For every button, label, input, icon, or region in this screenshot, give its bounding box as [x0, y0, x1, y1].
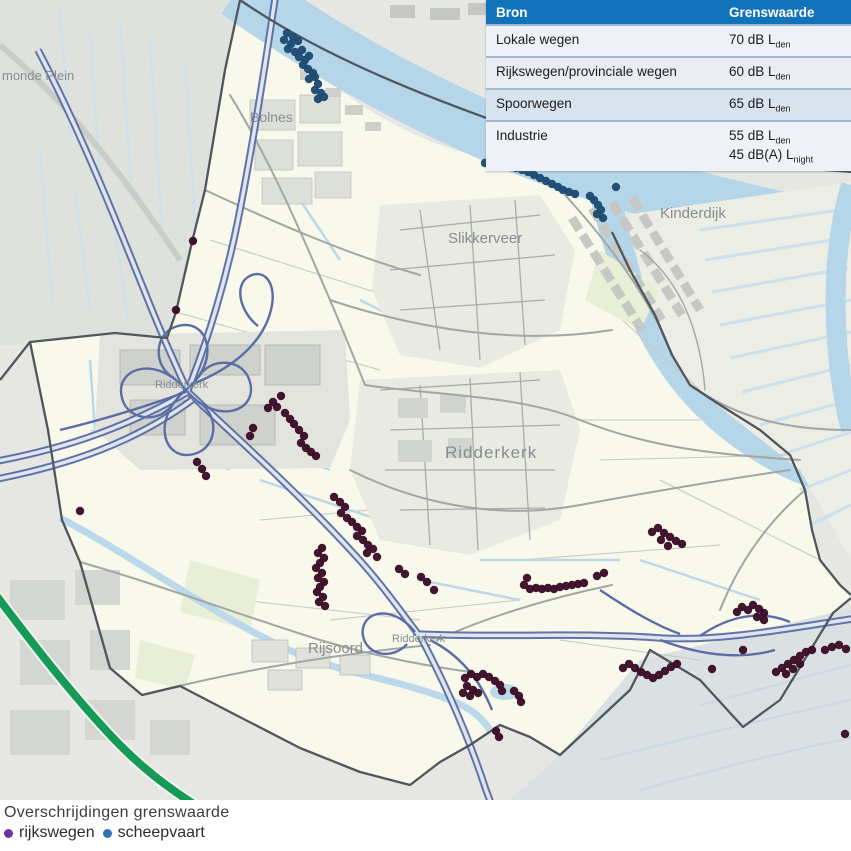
grenswaarde-cell: 60 dB Lden — [719, 58, 851, 88]
exceedance-dot — [305, 52, 313, 60]
limits-table-header: Bron Grenswaarde — [486, 0, 851, 24]
header-bron: Bron — [486, 0, 719, 24]
bron-cell: Industrie — [486, 122, 719, 171]
exceedance-dot — [474, 689, 482, 697]
scheepvaart-dot-icon — [103, 829, 112, 838]
exceedance-dot — [664, 542, 672, 550]
exceedance-dot — [76, 507, 84, 515]
map-legend: Overschrijdingen grenswaarde rijkswegens… — [4, 801, 844, 842]
exceedance-dot — [808, 646, 816, 654]
limits-table: Bron Grenswaarde Lokale wegen70 dB LdenR… — [486, 0, 851, 171]
rijkswegen-dot-icon — [4, 829, 13, 838]
legend-item-scheepvaart: scheepvaart — [103, 824, 205, 842]
place-label: Kinderdijk — [660, 205, 726, 222]
noise-map-figure: monde PleinBolnesSlikkerveerKinderdijkRi… — [0, 0, 851, 851]
exceedance-dot — [277, 392, 285, 400]
exceedance-dot — [673, 660, 681, 668]
exceedance-dot — [498, 687, 506, 695]
exceedance-dot — [796, 660, 804, 668]
place-label: monde Plein — [2, 68, 74, 83]
exceedance-dot — [320, 93, 328, 101]
legend-item-rijkswegen: rijkswegen — [4, 824, 95, 842]
legend-label: scheepvaart — [118, 824, 205, 842]
exceedance-dot — [678, 540, 686, 548]
bron-cell: Rijkswegen/provinciale wegen — [486, 58, 719, 88]
exceedance-dot — [842, 645, 850, 653]
exceedance-dot — [294, 37, 302, 45]
limits-table-body: Lokale wegen70 dB LdenRijkswegen/provinc… — [486, 24, 851, 171]
header-grenswaarde: Grenswaarde — [719, 0, 851, 24]
exceedance-dot — [189, 237, 197, 245]
exceedance-dot — [841, 730, 849, 738]
exceedance-dot — [321, 602, 329, 610]
legend-label: rijkswegen — [19, 824, 95, 842]
exceedance-dot — [495, 733, 503, 741]
legend-title: Overschrijdingen grenswaarde — [4, 801, 844, 822]
exceedance-dot — [401, 570, 409, 578]
grenswaarde-cell: 65 dB Lden — [719, 90, 851, 120]
table-row: Rijkswegen/provinciale wegen60 dB Lden — [486, 56, 851, 88]
table-row: Lokale wegen70 dB Lden — [486, 24, 851, 56]
exceedance-dot — [580, 579, 588, 587]
exceedance-dot — [312, 452, 320, 460]
table-row: Spoorwegen65 dB Lden — [486, 88, 851, 120]
exceedance-dot — [273, 403, 281, 411]
exceedance-dot — [430, 586, 438, 594]
exceedance-dot — [708, 665, 716, 673]
exceedance-dot — [193, 458, 201, 466]
exceedance-dot — [739, 646, 747, 654]
exceedance-dot — [523, 574, 531, 582]
grenswaarde-cell: 70 dB Lden — [719, 26, 851, 56]
bron-cell: Spoorwegen — [486, 90, 719, 120]
grenswaarde-cell: 55 dB Lden45 dB(A) Lnight — [719, 122, 851, 171]
exceedance-dot — [363, 549, 371, 557]
exceedance-dot — [600, 569, 608, 577]
legend-items: rijkswegenscheepvaart — [4, 824, 844, 842]
place-label: Bolnes — [250, 109, 293, 125]
exceedance-dot — [782, 670, 790, 678]
exceedance-dot — [246, 432, 254, 440]
exceedance-dot — [423, 578, 431, 586]
exceedance-dot — [789, 665, 797, 673]
exceedance-dot — [264, 404, 272, 412]
exceedance-dot — [202, 472, 210, 480]
exceedance-dot — [373, 553, 381, 561]
exceedance-dot — [172, 306, 180, 314]
exceedance-dot — [571, 190, 579, 198]
exceedance-dot — [599, 214, 607, 222]
exceedance-dot — [517, 698, 525, 706]
place-label: Rijsoord — [308, 640, 363, 657]
place-label: Ridderkerk — [392, 633, 446, 645]
exceedance-dot — [760, 616, 768, 624]
exceedance-dot — [249, 424, 257, 432]
bron-cell: Lokale wegen — [486, 26, 719, 56]
place-label: Ridderkerk — [155, 379, 209, 391]
place-label: Slikkerveer — [448, 230, 522, 247]
exceedance-dot — [612, 183, 620, 191]
exceedance-dot — [657, 536, 665, 544]
table-row: Industrie55 dB Lden45 dB(A) Lnight — [486, 120, 851, 171]
exceedance-dot — [466, 692, 474, 700]
place-label: Ridderkerk — [445, 443, 537, 462]
